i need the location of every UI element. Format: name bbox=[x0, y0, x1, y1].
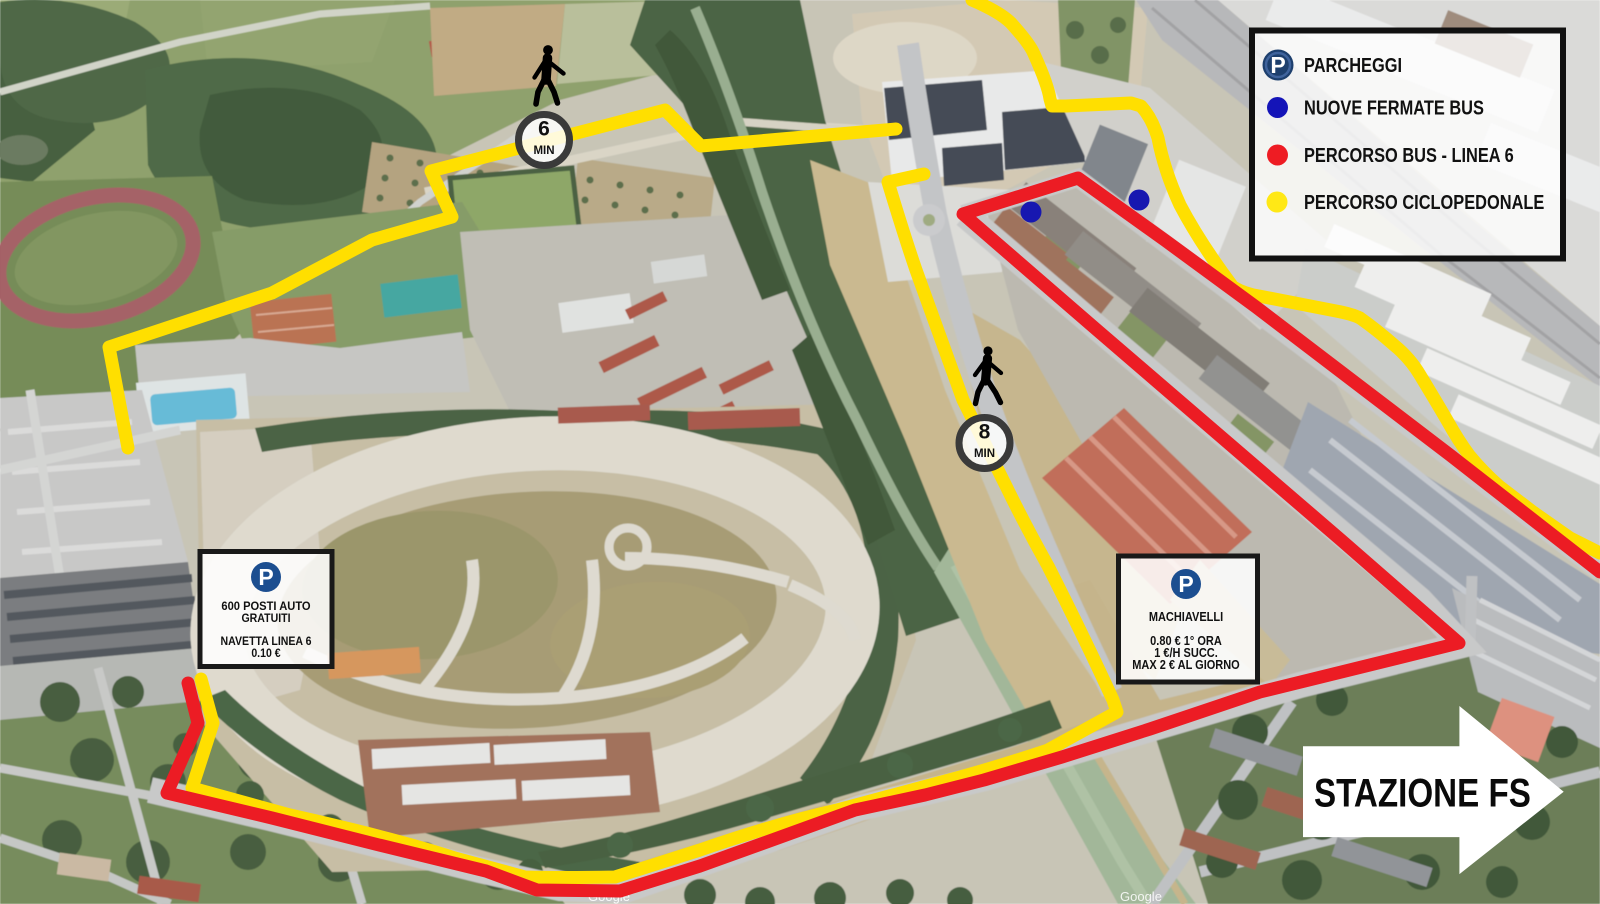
svg-text:6: 6 bbox=[538, 118, 550, 141]
svg-text:MIN: MIN bbox=[974, 448, 995, 460]
svg-text:P: P bbox=[1178, 571, 1193, 597]
svg-text:P: P bbox=[258, 564, 273, 590]
svg-text:PERCORSO CICLOPEDONALE: PERCORSO CICLOPEDONALE bbox=[1304, 190, 1544, 213]
svg-text:0.10 €: 0.10 € bbox=[251, 647, 281, 660]
svg-text:STAZIONE FS: STAZIONE FS bbox=[1314, 771, 1531, 815]
svg-text:NAVETTA LINEA 6: NAVETTA LINEA 6 bbox=[221, 635, 312, 648]
svg-text:MIN: MIN bbox=[533, 145, 554, 157]
svg-text:600 POSTI AUTO: 600 POSTI AUTO bbox=[221, 601, 310, 613]
svg-text:NUOVE FERMATE BUS: NUOVE FERMATE BUS bbox=[1304, 96, 1484, 119]
svg-text:GRATUITI: GRATUITI bbox=[241, 612, 290, 625]
svg-text:MACHIAVELLI: MACHIAVELLI bbox=[1149, 610, 1223, 624]
svg-text:Google: Google bbox=[1120, 889, 1162, 904]
svg-text:8: 8 bbox=[979, 421, 991, 444]
svg-text:P: P bbox=[1270, 52, 1285, 78]
svg-text:PERCORSO BUS - LINEA 6: PERCORSO BUS - LINEA 6 bbox=[1304, 143, 1514, 166]
svg-text:PARCHEGGI: PARCHEGGI bbox=[1304, 53, 1402, 76]
svg-text:MAX 2 € AL GIORNO: MAX 2 € AL GIORNO bbox=[1132, 658, 1239, 672]
